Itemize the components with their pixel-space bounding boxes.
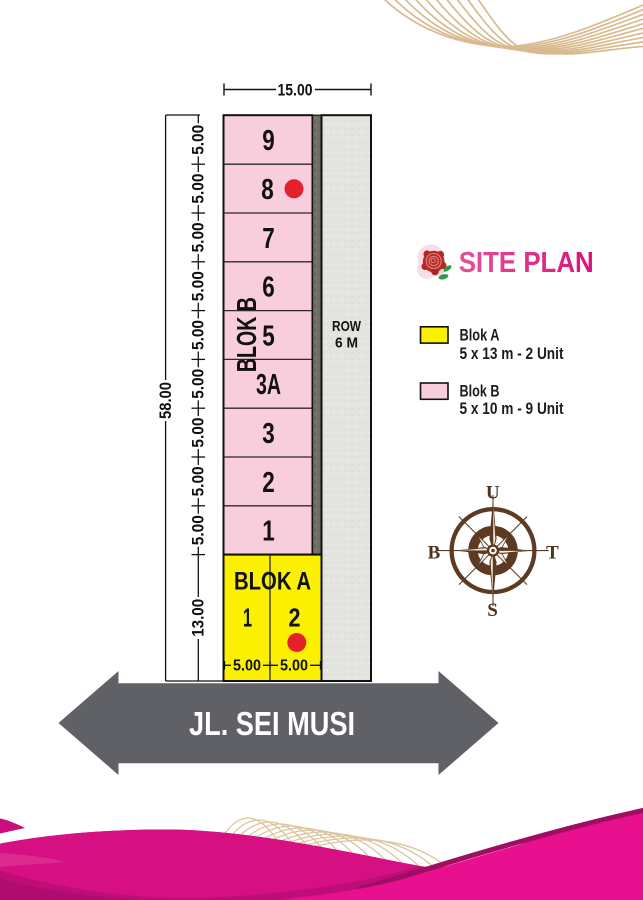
svg-text:15.00: 15.00: [278, 81, 313, 100]
svg-text:5.00: 5.00: [280, 657, 308, 674]
svg-text:5.00: 5.00: [189, 271, 208, 301]
svg-text:8: 8: [261, 174, 274, 206]
svg-text:JL. SEI MUSI: JL. SEI MUSI: [189, 705, 355, 742]
svg-text:T: T: [546, 543, 559, 564]
svg-text:U: U: [486, 483, 500, 504]
svg-text:5.00: 5.00: [189, 418, 208, 448]
svg-text:7: 7: [262, 223, 275, 255]
svg-text:BLOK B: BLOK B: [231, 297, 262, 372]
svg-text:5.00: 5.00: [189, 515, 208, 545]
svg-text:ROW: ROW: [332, 318, 362, 335]
svg-text:5.00: 5.00: [189, 222, 208, 252]
svg-text:5.00: 5.00: [189, 320, 208, 350]
svg-text:S: S: [487, 600, 498, 621]
svg-text:6 M: 6 M: [335, 335, 358, 352]
svg-text:5.00: 5.00: [189, 369, 208, 399]
svg-text:5: 5: [262, 320, 275, 352]
svg-text:B: B: [428, 543, 441, 564]
svg-text:5 x 10 m - 9 Unit: 5 x 10 m - 9 Unit: [460, 399, 564, 418]
svg-text:5.00: 5.00: [189, 125, 208, 155]
svg-text:SITE PLAN: SITE PLAN: [459, 247, 594, 279]
svg-text:BLOK A: BLOK A: [234, 568, 311, 596]
svg-text:2: 2: [289, 603, 301, 633]
svg-text:1: 1: [243, 603, 252, 633]
svg-text:Blok B: Blok B: [460, 381, 500, 400]
svg-text:5.00: 5.00: [189, 466, 208, 496]
svg-text:13.00: 13.00: [189, 599, 208, 637]
svg-text:6: 6: [262, 272, 275, 304]
svg-text:2: 2: [262, 467, 275, 499]
svg-text:9: 9: [262, 125, 275, 157]
svg-text:5.00: 5.00: [189, 174, 208, 204]
svg-text:Blok A: Blok A: [460, 326, 500, 345]
svg-text:5 x 13 m - 2 Unit: 5 x 13 m - 2 Unit: [460, 344, 564, 363]
svg-text:58.00: 58.00: [156, 382, 175, 419]
svg-text:5.00: 5.00: [233, 657, 261, 674]
svg-text:3: 3: [262, 418, 275, 450]
svg-text:1: 1: [262, 516, 275, 548]
svg-text:3A: 3A: [256, 369, 281, 401]
